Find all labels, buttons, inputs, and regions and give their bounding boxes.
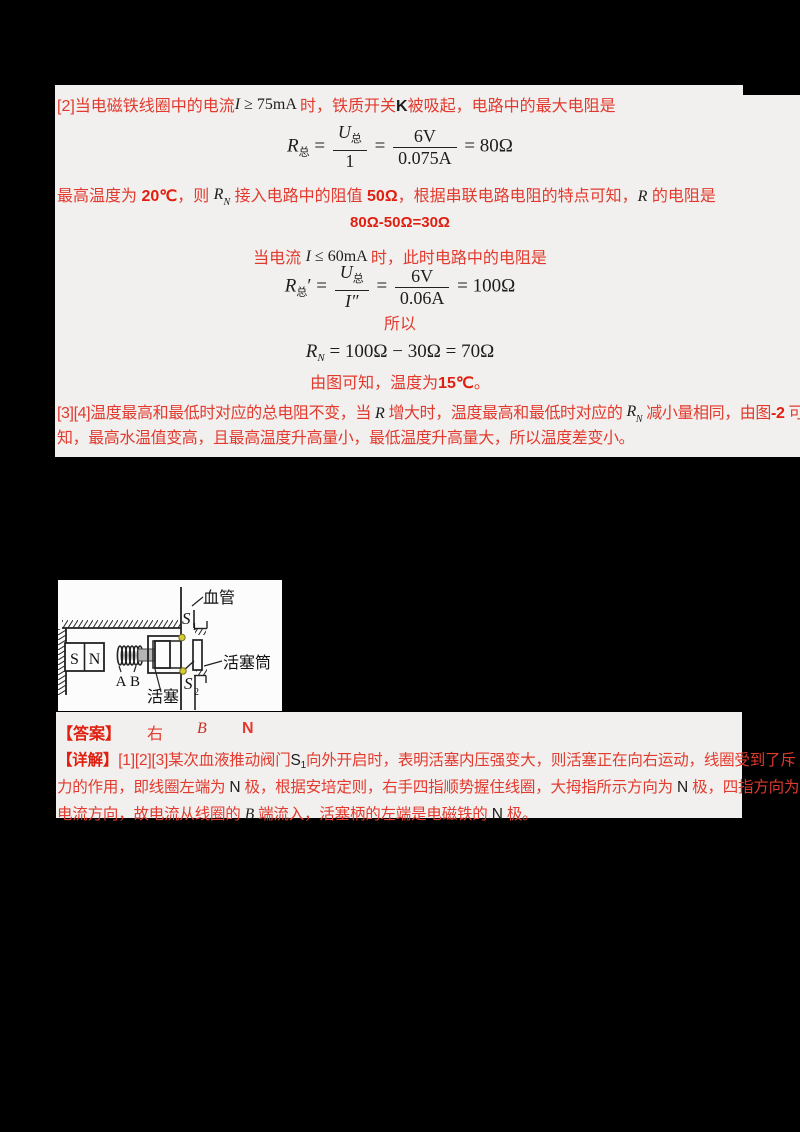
formula-RN: RN = 100Ω − 30Ω = 70Ω [55, 341, 745, 364]
valve-s2-label: S [184, 674, 193, 693]
l10-text-1: [3][4]温度最高和最低时对应的总电阻不变，当 [57, 405, 375, 422]
d2-pole-2: N [677, 779, 688, 796]
l3-text-4: ，根据串联电路电阻的特点可知， [398, 188, 638, 205]
terminal-b-label: B [130, 674, 140, 690]
valve-s1-sub: 1 [192, 622, 197, 633]
piston [155, 641, 170, 668]
l10-RN: R [627, 403, 636, 420]
answer-value-3: N [242, 720, 254, 738]
f3-R-sub: N [317, 352, 324, 364]
cylinder-label: 活塞筒 [223, 654, 271, 672]
d2-pole-1: N [229, 779, 240, 796]
solution-line-1-mid: 时，铁质开关 [300, 98, 396, 115]
valve-s2-sub: 2 [194, 687, 199, 698]
formula-total-resistance-2: R总′ = U总I″ = 6V0.06A = 100Ω [55, 263, 745, 311]
answer-panel: 【答案】 右 B N 【详解】[1][2][3]某次血液推动阀门S1向外开启时，… [56, 712, 742, 818]
detail-line-1: 【详解】[1][2][3]某次血液推动阀门S1向外开启时，表明活塞内压强变大，则… [57, 748, 796, 771]
l3-R: R [638, 188, 648, 205]
detail-line-2: 力的作用，即线圈左端为 N 极，根据安培定则，右手四指顺势握住线圈，大拇指所示方… [57, 775, 799, 797]
diagram-svg: S N A B [58, 580, 282, 711]
magnet-n-label: N [89, 651, 101, 668]
f1-R: R [287, 135, 299, 156]
vessel-label: 血管 [203, 589, 235, 607]
magnet-s-label: S [70, 651, 79, 668]
l10-R: R [375, 405, 384, 422]
cylinder-mouth-bar [193, 640, 202, 670]
f2-den1: I″ [335, 291, 369, 311]
f2-num2: 6V [395, 267, 450, 288]
f2-R-sub: 总 [296, 286, 307, 298]
f1-U: U [338, 122, 351, 142]
d3-text-2: 端流入，活塞柄的左端是电磁铁的 [254, 806, 492, 823]
f1-eq2: = [375, 135, 386, 156]
answer-label: 【答案】 [57, 720, 121, 744]
f1-den2: 0.075A [393, 148, 457, 168]
f1-fraction-2: 6V0.075A [393, 127, 457, 168]
l9-text-2: 。 [474, 375, 490, 392]
valve-s1-hinge [179, 634, 185, 640]
d2-text-1: 力的作用，即线圈左端为 [57, 779, 229, 796]
f2-R: R [285, 275, 297, 296]
l9-text-1: 由图可知，温度为 [310, 375, 438, 392]
solution-line-3: 最高温度为 20℃，则 RN 接入电路中的阻值 50Ω，根据串联电路电阻的特点可… [57, 185, 716, 213]
d3-terminal-b: B [245, 806, 254, 823]
current-threshold: ≥ 75mA [240, 96, 300, 113]
f1-U-sub: 总 [351, 133, 362, 145]
d1-text-2: 向外开启时，表明活塞内压强变大，则活塞正在向右运动，线圈受到了斥 [306, 752, 796, 769]
d3-pole: N [492, 806, 503, 823]
coil-terminals: A B [116, 666, 140, 690]
l3-text-1: 最高温度为 [57, 188, 141, 205]
solution-line-1: [2]当电磁铁线圈中的电流I ≥ 75mA 时，铁质开关K被吸起，电路中的最大电… [57, 95, 616, 117]
solution-line-1-end: 被吸起，电路中的最大电阻是 [408, 98, 616, 115]
page-background: { "palette": { "background": "#000000", … [0, 0, 800, 1132]
f2-eq1: = [316, 275, 327, 296]
suoyi-line: 所以 [55, 315, 745, 335]
l9-temp: 15℃ [438, 375, 474, 392]
solution-panel: [2]当电磁铁线圈中的电流I ≥ 75mA 时，铁质开关K被吸起，电路中的最大电… [55, 85, 800, 457]
l10-fig2: -2 [771, 405, 784, 422]
piston-pump-diagram: S N A B [58, 580, 282, 711]
f3-rest: = 100Ω − 30Ω = 70Ω [325, 341, 495, 362]
l3-text-5: 的电阻是 [647, 188, 715, 205]
solution-line-1-text: [2]当电磁铁线圈中的电流 [57, 98, 235, 115]
f2-result: = 100Ω [457, 275, 515, 296]
f1-fraction-1: U总1 [333, 123, 367, 171]
f2-eq2: = [376, 275, 387, 296]
l10-text-2: 增大时，温度最高和最低时对应的 [384, 405, 626, 422]
piston-label: 活塞 [147, 688, 179, 706]
answer-value-2: B [197, 720, 207, 738]
temperature-conclusion-line: 由图可知，温度为15℃。 [55, 374, 745, 394]
detail-label: 【详解】 [57, 752, 118, 769]
magnet: S N [65, 643, 104, 671]
f2-fraction-1: U总I″ [335, 263, 369, 311]
f3-R: R [306, 341, 318, 362]
switch-k: K [396, 98, 408, 115]
d3-text-3: 极。 [503, 806, 538, 823]
answer-value-1: 右 [147, 720, 163, 744]
top-right-black-notch [743, 85, 800, 95]
f1-R-sub: 总 [299, 146, 310, 158]
d2-text-3: 极，四指方向为 [688, 779, 799, 796]
resistance-difference-line: 80Ω-50Ω=30Ω [55, 213, 745, 233]
formula-total-resistance: R总 = U总1 = 6V0.075A = 80Ω [55, 123, 745, 171]
f2-fraction-2: 6V0.06A [395, 267, 450, 308]
detail-line-3: 电流方向，故电流从线圈的 B 端流入，活塞柄的左端是电磁铁的 N 极。 [57, 802, 537, 824]
solution-line-10: [3][4]温度最高和最低时对应的总电阻不变，当 R 增大时，温度最高和最低时对… [57, 402, 800, 430]
d3-text-1: 电流方向，故电流从线圈的 [57, 806, 245, 823]
wall-top [62, 620, 181, 628]
f2-den2: 0.06A [395, 288, 450, 308]
f1-num2: 6V [393, 127, 457, 148]
l3-text-3: 接入电路中的阻值 [230, 188, 367, 205]
d2-text-2: 极，根据安培定则，右手四指顺势握住线圈，大拇指所示方向为 [240, 779, 677, 796]
l3-text-2: ，则 [177, 188, 213, 205]
solution-line-11: 知，最高水温值变高，且最高温度升高量小，最低温度升高量大，所以温度差变小。 [57, 429, 634, 449]
d1-text-1: [1][2][3]某次血液推动阀门 [118, 752, 290, 769]
f1-eq1: = [314, 135, 325, 156]
l10-text-3: 减小量相同，由图 [642, 405, 771, 422]
f1-den1: 1 [333, 151, 367, 171]
f1-result: = 80Ω [464, 135, 513, 156]
f2-U: U [340, 262, 353, 282]
f2-U-sub: 总 [353, 273, 364, 285]
valve-s1-label: S [182, 609, 191, 628]
l10-text-4: 可 [784, 405, 800, 422]
f2-prime: ′ [307, 275, 311, 296]
l3-RN: R [214, 186, 224, 203]
terminal-a-label: A [116, 674, 127, 690]
d1-valve-s: S [291, 752, 301, 769]
l3-temp: 20℃ [141, 188, 177, 205]
l3-50ohm: 50Ω [367, 188, 398, 205]
